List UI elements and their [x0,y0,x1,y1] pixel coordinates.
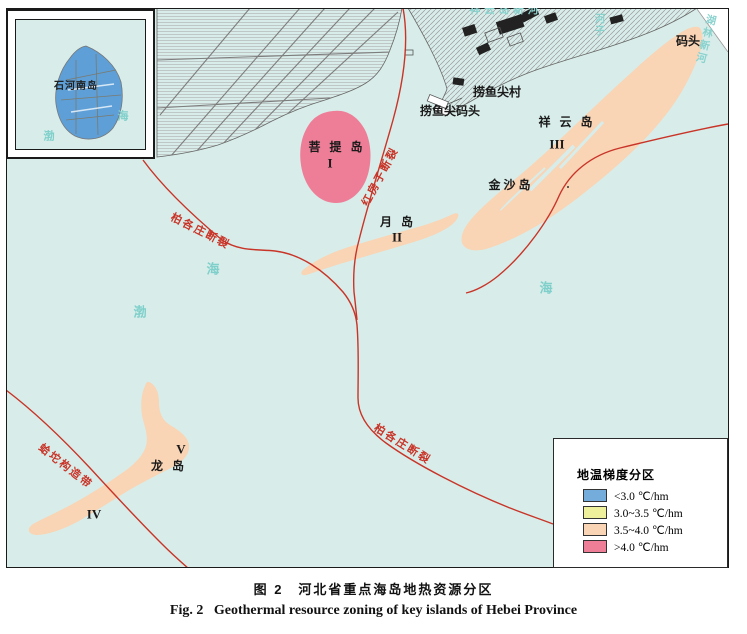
label-inset-bo: 渤 [44,132,55,143]
legend-row: <3.0 ℃/hm [583,489,727,502]
inset-map: 石河南岛 渤 海 [6,9,155,159]
label-laoyujian-village: 捞鱼尖村 [473,86,521,98]
label-inset-island: 石河南岛 [54,82,98,92]
legend-row: 3.5~4.0 ℃/hm [583,523,727,536]
label-sea-bo: 渤 [133,306,146,319]
legend-title: 地温梯度分区 [577,466,727,483]
label-inset-hai: 海 [118,112,129,123]
label-xiangyundao: 祥 云 岛 [538,116,595,128]
numeral-IV: IV [87,508,101,521]
caption-chinese: 图 2 河北省重点海岛地热资源分区 [0,579,747,598]
legend-row: 3.0~3.5 ℃/hm [583,506,727,519]
legend-swatch-gt40 [583,540,607,553]
label-river-top: 祥云岛新河 [470,8,543,16]
label-laoyujian-wharf: 捞鱼尖码头 [420,105,480,117]
label-sea-hai-left: 海 [206,263,219,276]
legend: 地温梯度分区 <3.0 ℃/hm 3.0~3.5 ℃/hm 3.5~4.0 ℃/… [553,438,728,568]
legend-label-30-35: 3.0~3.5 ℃/hm [614,506,683,520]
main-map: 捞鱼尖村 捞鱼尖码头 码头 祥 云 岛 III 金沙岛 菩 提 岛 I 月 岛 … [6,8,729,568]
map-dot [567,186,569,188]
legend-label-35-40: 3.5~4.0 ℃/hm [614,523,683,537]
label-wharf: 码头 [676,35,700,47]
numeral-III: III [549,138,564,151]
inset-island-shape [56,46,123,139]
numeral-II: II [392,231,402,244]
figure-page: 捞鱼尖村 捞鱼尖码头 码头 祥 云 岛 III 金沙岛 菩 提 岛 I 月 岛 … [0,0,747,634]
label-sea-hai-right: 海 [539,282,552,295]
legend-label-gt40: >4.0 ℃/hm [614,540,669,554]
label-putidao: 菩 提 岛 [308,141,365,153]
numeral-V: V [176,443,185,456]
label-longdao: 龙 岛 [151,460,187,472]
label-yuedao: 月 岛 [380,216,416,228]
inset-panel: 石河南岛 渤 海 [15,19,146,150]
caption-english: Fig. 2 Geothermal resource zoning of key… [0,603,747,619]
label-river-hezi: 河 子 [595,14,606,38]
numeral-I: I [327,157,332,170]
legend-label-lt30: <3.0 ℃/hm [614,489,669,503]
label-jinshadao: 金沙岛 [488,179,533,191]
island-putidao [300,111,370,203]
legend-swatch-35-40 [583,523,607,536]
legend-swatch-lt30 [583,489,607,502]
legend-row: >4.0 ℃/hm [583,540,727,553]
legend-swatch-30-35 [583,506,607,519]
